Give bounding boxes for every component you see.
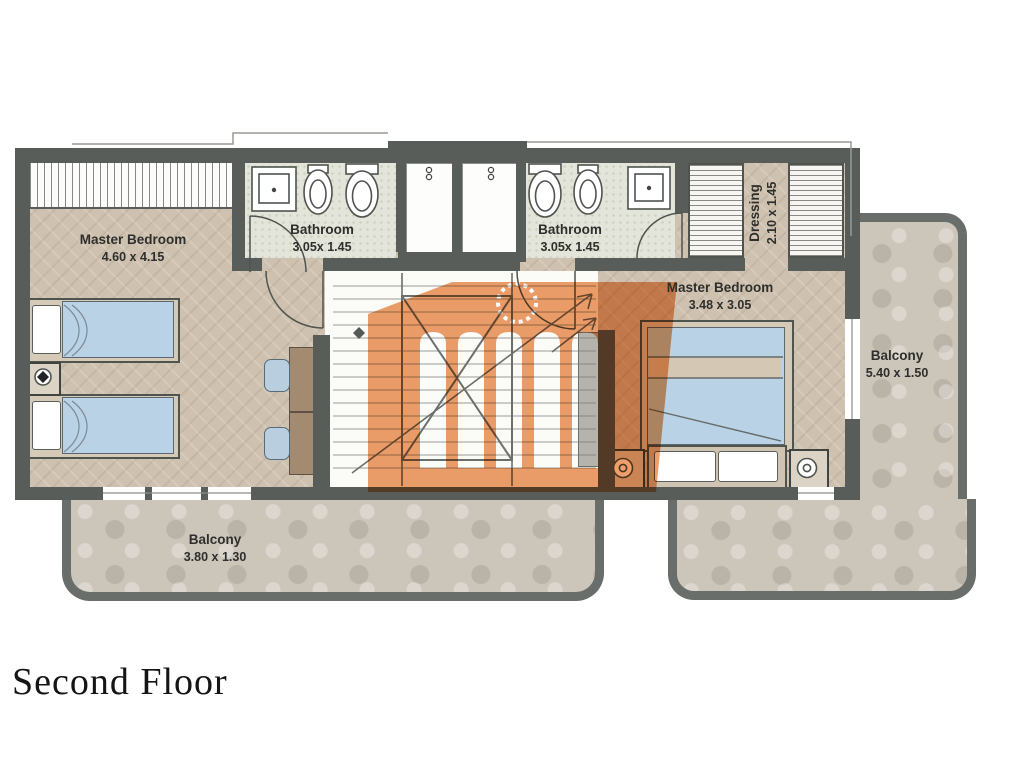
nightstand-left-bedroom [28, 362, 61, 396]
wardrobe-unit-right-bedroom [578, 332, 599, 467]
window-mullion [145, 487, 152, 500]
wardrobe-closet-left-bedroom [30, 163, 232, 209]
wall-segment [15, 148, 30, 500]
bed-double-blanket [647, 327, 785, 445]
label-dressing: Dressing 2.10 x 1.45 [746, 153, 782, 273]
balcony-right-lower [668, 499, 976, 600]
wall-segment [598, 330, 615, 487]
label-balcony-right: Balcony 5.40 x 1.50 [838, 347, 956, 381]
wall-segment [232, 258, 262, 271]
wall-segment [788, 258, 845, 271]
bed-1-blanket [62, 301, 174, 358]
dressing-wardrobe-left [688, 163, 744, 258]
wall-segment [232, 163, 245, 258]
duct-shaft-left [406, 163, 454, 254]
sliding-door-bottom-left [103, 487, 251, 500]
wall-segment [313, 335, 330, 487]
label-bathroom-left: Bathroom 3.05x 1.45 [262, 221, 382, 255]
bed-1-pillow [32, 305, 61, 354]
wall-segment [452, 163, 462, 252]
floor-plan-canvas: Master Bedroom 4.60 x 4.15 Bathroom 3.05… [0, 0, 1024, 768]
stair-hall-floor [325, 271, 598, 487]
label-bathroom-right: Bathroom 3.05x 1.45 [510, 221, 630, 255]
wall-segment [396, 163, 406, 252]
desk-chair-1 [264, 359, 290, 392]
label-master-bedroom-left: Master Bedroom 4.60 x 4.15 [48, 231, 218, 265]
desk-chair-2 [264, 427, 290, 460]
sliding-door-bottom-right [798, 487, 834, 500]
bed-double-pillow-2 [718, 451, 778, 482]
wall-segment [398, 252, 526, 262]
wall-segment [688, 258, 745, 271]
wall-segment [675, 163, 688, 213]
balcony-bottom [62, 498, 604, 601]
nightstand-right-bedroom-right [789, 449, 829, 491]
bed-2-blanket [62, 397, 174, 454]
wall-segment [388, 141, 527, 163]
wall-segment [575, 258, 688, 271]
window-mullion [201, 487, 208, 500]
floor-caption: Second Floor [12, 660, 228, 704]
bed-double-pillow-1 [654, 451, 716, 482]
bed-2-pillow [32, 401, 61, 450]
dressing-wardrobe-right [788, 163, 844, 258]
bed-double-band [649, 357, 781, 378]
label-balcony-bottom: Balcony 3.80 x 1.30 [145, 531, 285, 565]
label-master-bedroom-right: Master Bedroom 3.48 x 3.05 [635, 279, 805, 313]
